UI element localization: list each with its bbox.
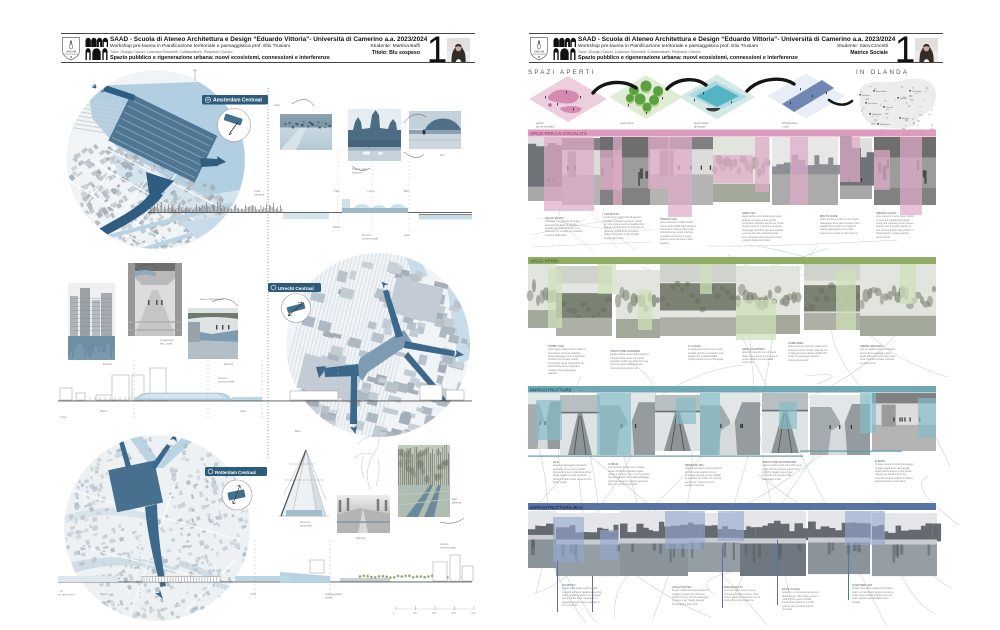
svg-text:0: 0 <box>393 611 395 615</box>
svg-text:su rete metro: su rete metro <box>58 592 75 596</box>
svg-text:Utrecht: Utrecht <box>886 106 893 109</box>
svg-text:vista: vista <box>274 103 280 107</box>
svg-text:SPAZI APERTI: SPAZI APERTI <box>528 69 595 76</box>
svg-text:SPAZI PER LA SOCIALITÀ: SPAZI PER LA SOCIALITÀ <box>530 130 588 136</box>
svg-text:commerciali: commerciali <box>362 236 378 240</box>
svg-text:Auto: Auto <box>404 233 411 237</box>
svg-text:turistica: turistica <box>254 193 265 197</box>
svg-text:verde: verde <box>325 595 333 599</box>
svg-text:Rotterdam Centraal: Rotterdam Centraal <box>215 470 256 475</box>
svg-text:bici: bici <box>440 153 445 157</box>
svg-text:100: 100 <box>413 611 418 615</box>
svg-text:Metro: Metro <box>100 592 108 596</box>
svg-text:Piazza: Piazza <box>224 362 233 366</box>
svg-text:400: 400 <box>471 611 476 615</box>
svg-text:INFRASTRUTTURA BLU: INFRASTRUTTURA BLU <box>530 505 583 510</box>
svg-text:spazi verdi: spazi verdi <box>620 121 634 125</box>
svg-text:Treno: Treno <box>380 429 388 433</box>
svg-text:Bus: Bus <box>295 429 301 433</box>
svg-text:alberati: alberati <box>452 500 462 504</box>
svg-text:stazione: stazione <box>352 170 363 174</box>
svg-text:INFRASTRUTTURE: INFRASTRUTTURE <box>530 387 572 392</box>
svg-text:Metro: Metro <box>100 409 108 413</box>
svg-text:Treno: Treno <box>330 409 338 413</box>
svg-text:asse ciclopedonale: asse ciclopedonale <box>200 297 224 301</box>
svg-text:300: 300 <box>452 611 457 615</box>
svg-text:e bici: e bici <box>782 124 789 128</box>
svg-text:Amsterdam: Amsterdam <box>876 90 887 93</box>
svg-text:Almere: Almere <box>900 97 907 100</box>
svg-text:Tram: Tram <box>333 189 340 193</box>
svg-text:Auto: Auto <box>250 592 257 596</box>
svg-text:Bici: Bici <box>404 189 409 193</box>
svg-text:200: 200 <box>432 611 437 615</box>
svg-text:Den Haag: Den Haag <box>868 103 878 105</box>
svg-text:Tram: Tram <box>60 415 67 419</box>
svg-text:attr...dale: attr...dale <box>160 341 173 345</box>
svg-text:Arnhem: Arnhem <box>902 117 910 120</box>
svg-text:principale: principale <box>300 523 312 527</box>
svg-text:Rotterdam: Rotterdam <box>872 113 882 116</box>
svg-text:Auto: Auto <box>240 409 247 413</box>
svg-text:Metro: Metro <box>333 225 341 229</box>
svg-text:Haarlem: Haarlem <box>862 94 870 97</box>
svg-text:SPAZI VERDI: SPAZI VERDI <box>530 259 559 264</box>
svg-text:Utrecht Centraal: Utrecht Centraal <box>278 286 314 291</box>
svg-text:Piazza: Piazza <box>103 362 112 366</box>
svg-text:commerciali: commerciali <box>218 379 234 383</box>
svg-text:Eindhoven: Eindhoven <box>880 124 891 126</box>
svg-text:commerciale: commerciale <box>440 545 456 549</box>
svg-text:all’acqua: all’acqua <box>694 124 705 128</box>
svg-text:IN OLANDA: IN OLANDA <box>856 69 909 76</box>
svg-text:Piazza: Piazza <box>356 536 365 540</box>
svg-text:Treno: Treno <box>367 189 375 193</box>
svg-text:Groningen: Groningen <box>912 90 923 93</box>
svg-text:Amsterdam Centraal: Amsterdam Centraal <box>213 98 263 104</box>
svg-text:per la socialità: per la socialità <box>536 124 554 128</box>
